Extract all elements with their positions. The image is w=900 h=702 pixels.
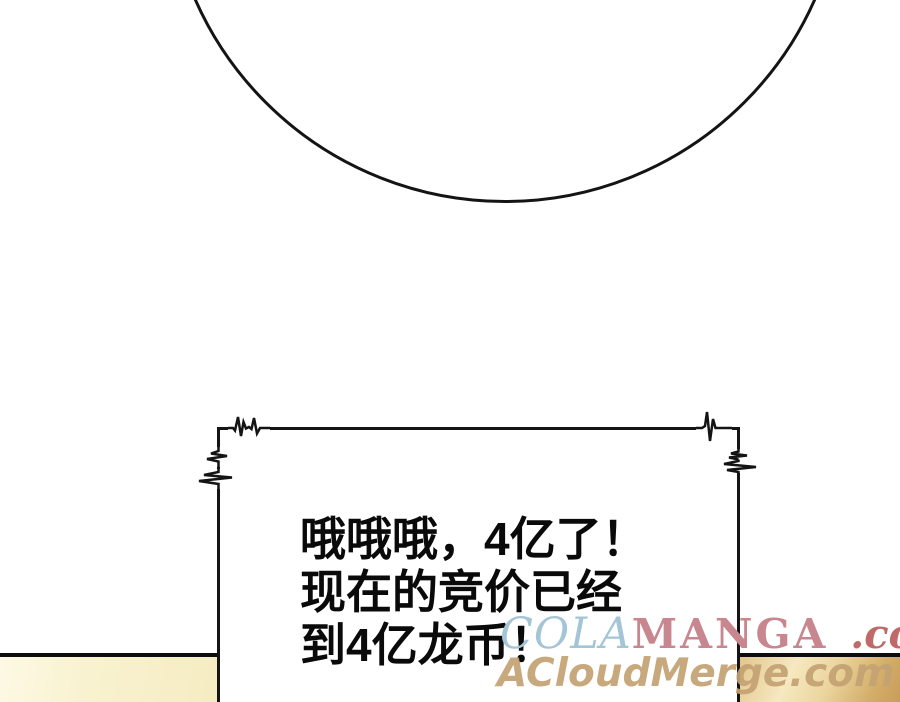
dialog-text-line-1: 哦哦哦，4亿了！	[300, 513, 648, 566]
shake-mark-left-lower-icon	[198, 469, 236, 489]
speech-bubble-arc	[165, 0, 845, 203]
next-panel-left	[0, 653, 217, 702]
watermark-acloudmerge: ACloudMerge.com	[497, 654, 895, 693]
shake-mark-top-right-icon	[696, 410, 732, 444]
shake-mark-left-upper-icon	[204, 447, 234, 467]
watermark-colamanga: COLAMANGA.com	[500, 613, 900, 656]
shake-mark-right-icon	[722, 449, 758, 473]
comic-page: 哦哦哦，4亿了！ 现在的竞价已经 到4亿龙币！ COLAMANGA.com AC…	[0, 0, 900, 702]
shake-mark-top-left-icon	[228, 414, 270, 444]
